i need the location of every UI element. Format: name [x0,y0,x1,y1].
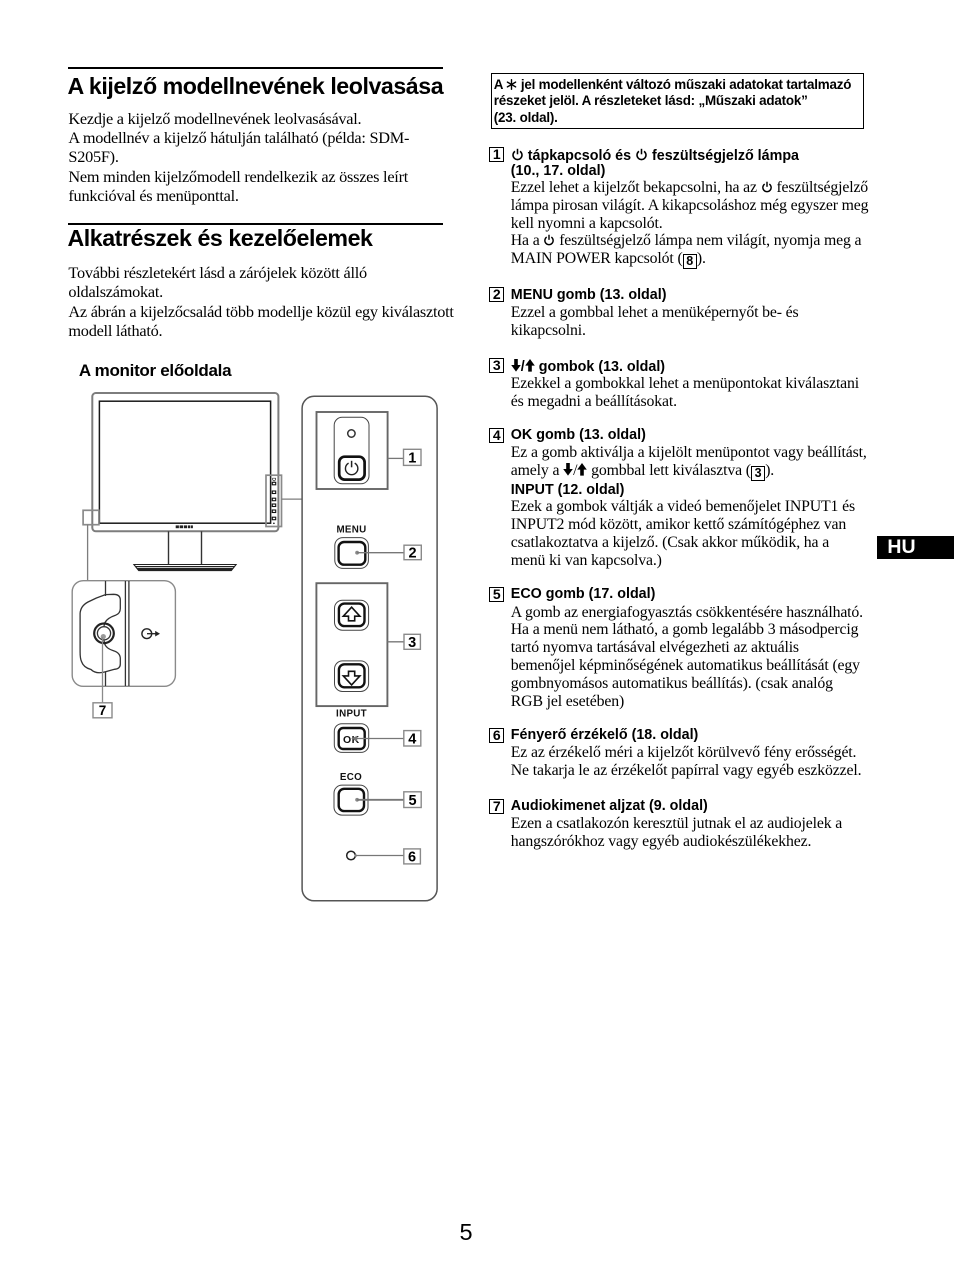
svg-text:6: 6 [408,849,416,865]
svg-text:2: 2 [409,545,417,561]
svg-text:INPUT: INPUT [336,709,367,720]
svg-text:MENU: MENU [336,525,366,536]
svg-text:OK: OK [343,734,360,746]
svg-text:7: 7 [99,703,107,718]
svg-text:1: 1 [408,450,416,466]
svg-text:3: 3 [408,635,416,651]
svg-text:5: 5 [408,793,416,809]
svg-text:ECO: ECO [340,772,362,783]
svg-text:4: 4 [408,731,416,747]
